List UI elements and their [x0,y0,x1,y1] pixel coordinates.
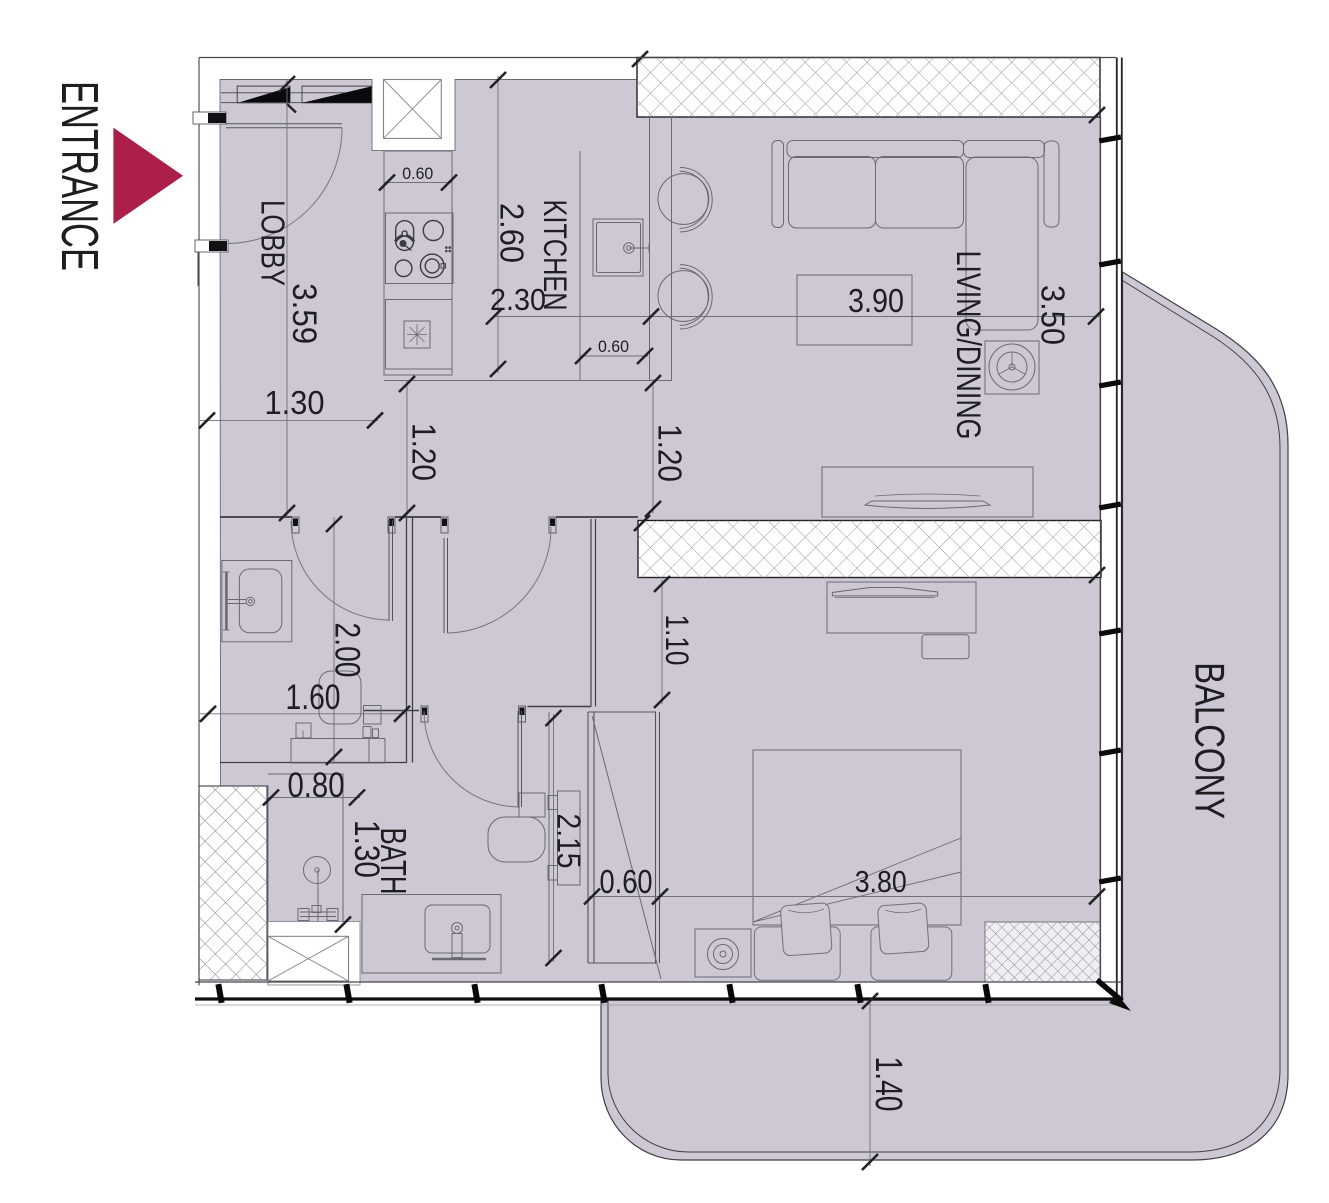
svg-text:ENTRANCE: ENTRANCE [50,81,108,271]
svg-text:BATH: BATH [373,828,414,895]
svg-text:2.15: 2.15 [551,814,588,869]
svg-text:3.80: 3.80 [855,864,907,899]
svg-text:KITCHEN: KITCHEN [537,200,573,311]
svg-text:LIVING/DINING: LIVING/DINING [949,251,987,440]
svg-text:3.90: 3.90 [848,282,904,319]
svg-text:2.00: 2.00 [328,623,367,678]
svg-text:0.60: 0.60 [598,337,629,356]
svg-text:0.60: 0.60 [402,164,433,183]
svg-text:3.59: 3.59 [285,283,323,344]
svg-text:1.10: 1.10 [659,615,695,666]
svg-text:1.30: 1.30 [265,384,325,421]
svg-text:LOBBY: LOBBY [254,200,291,286]
svg-text:1.60: 1.60 [286,678,341,717]
svg-text:0.60: 0.60 [600,863,653,900]
svg-text:2.60: 2.60 [493,203,530,263]
svg-text:3.50: 3.50 [1035,285,1072,345]
svg-text:BALCONY: BALCONY [1187,662,1234,819]
svg-text:0.80: 0.80 [288,766,345,805]
svg-text:1.20: 1.20 [652,424,689,482]
svg-text:1.40: 1.40 [867,1057,909,1112]
svg-text:1.20: 1.20 [406,423,443,481]
